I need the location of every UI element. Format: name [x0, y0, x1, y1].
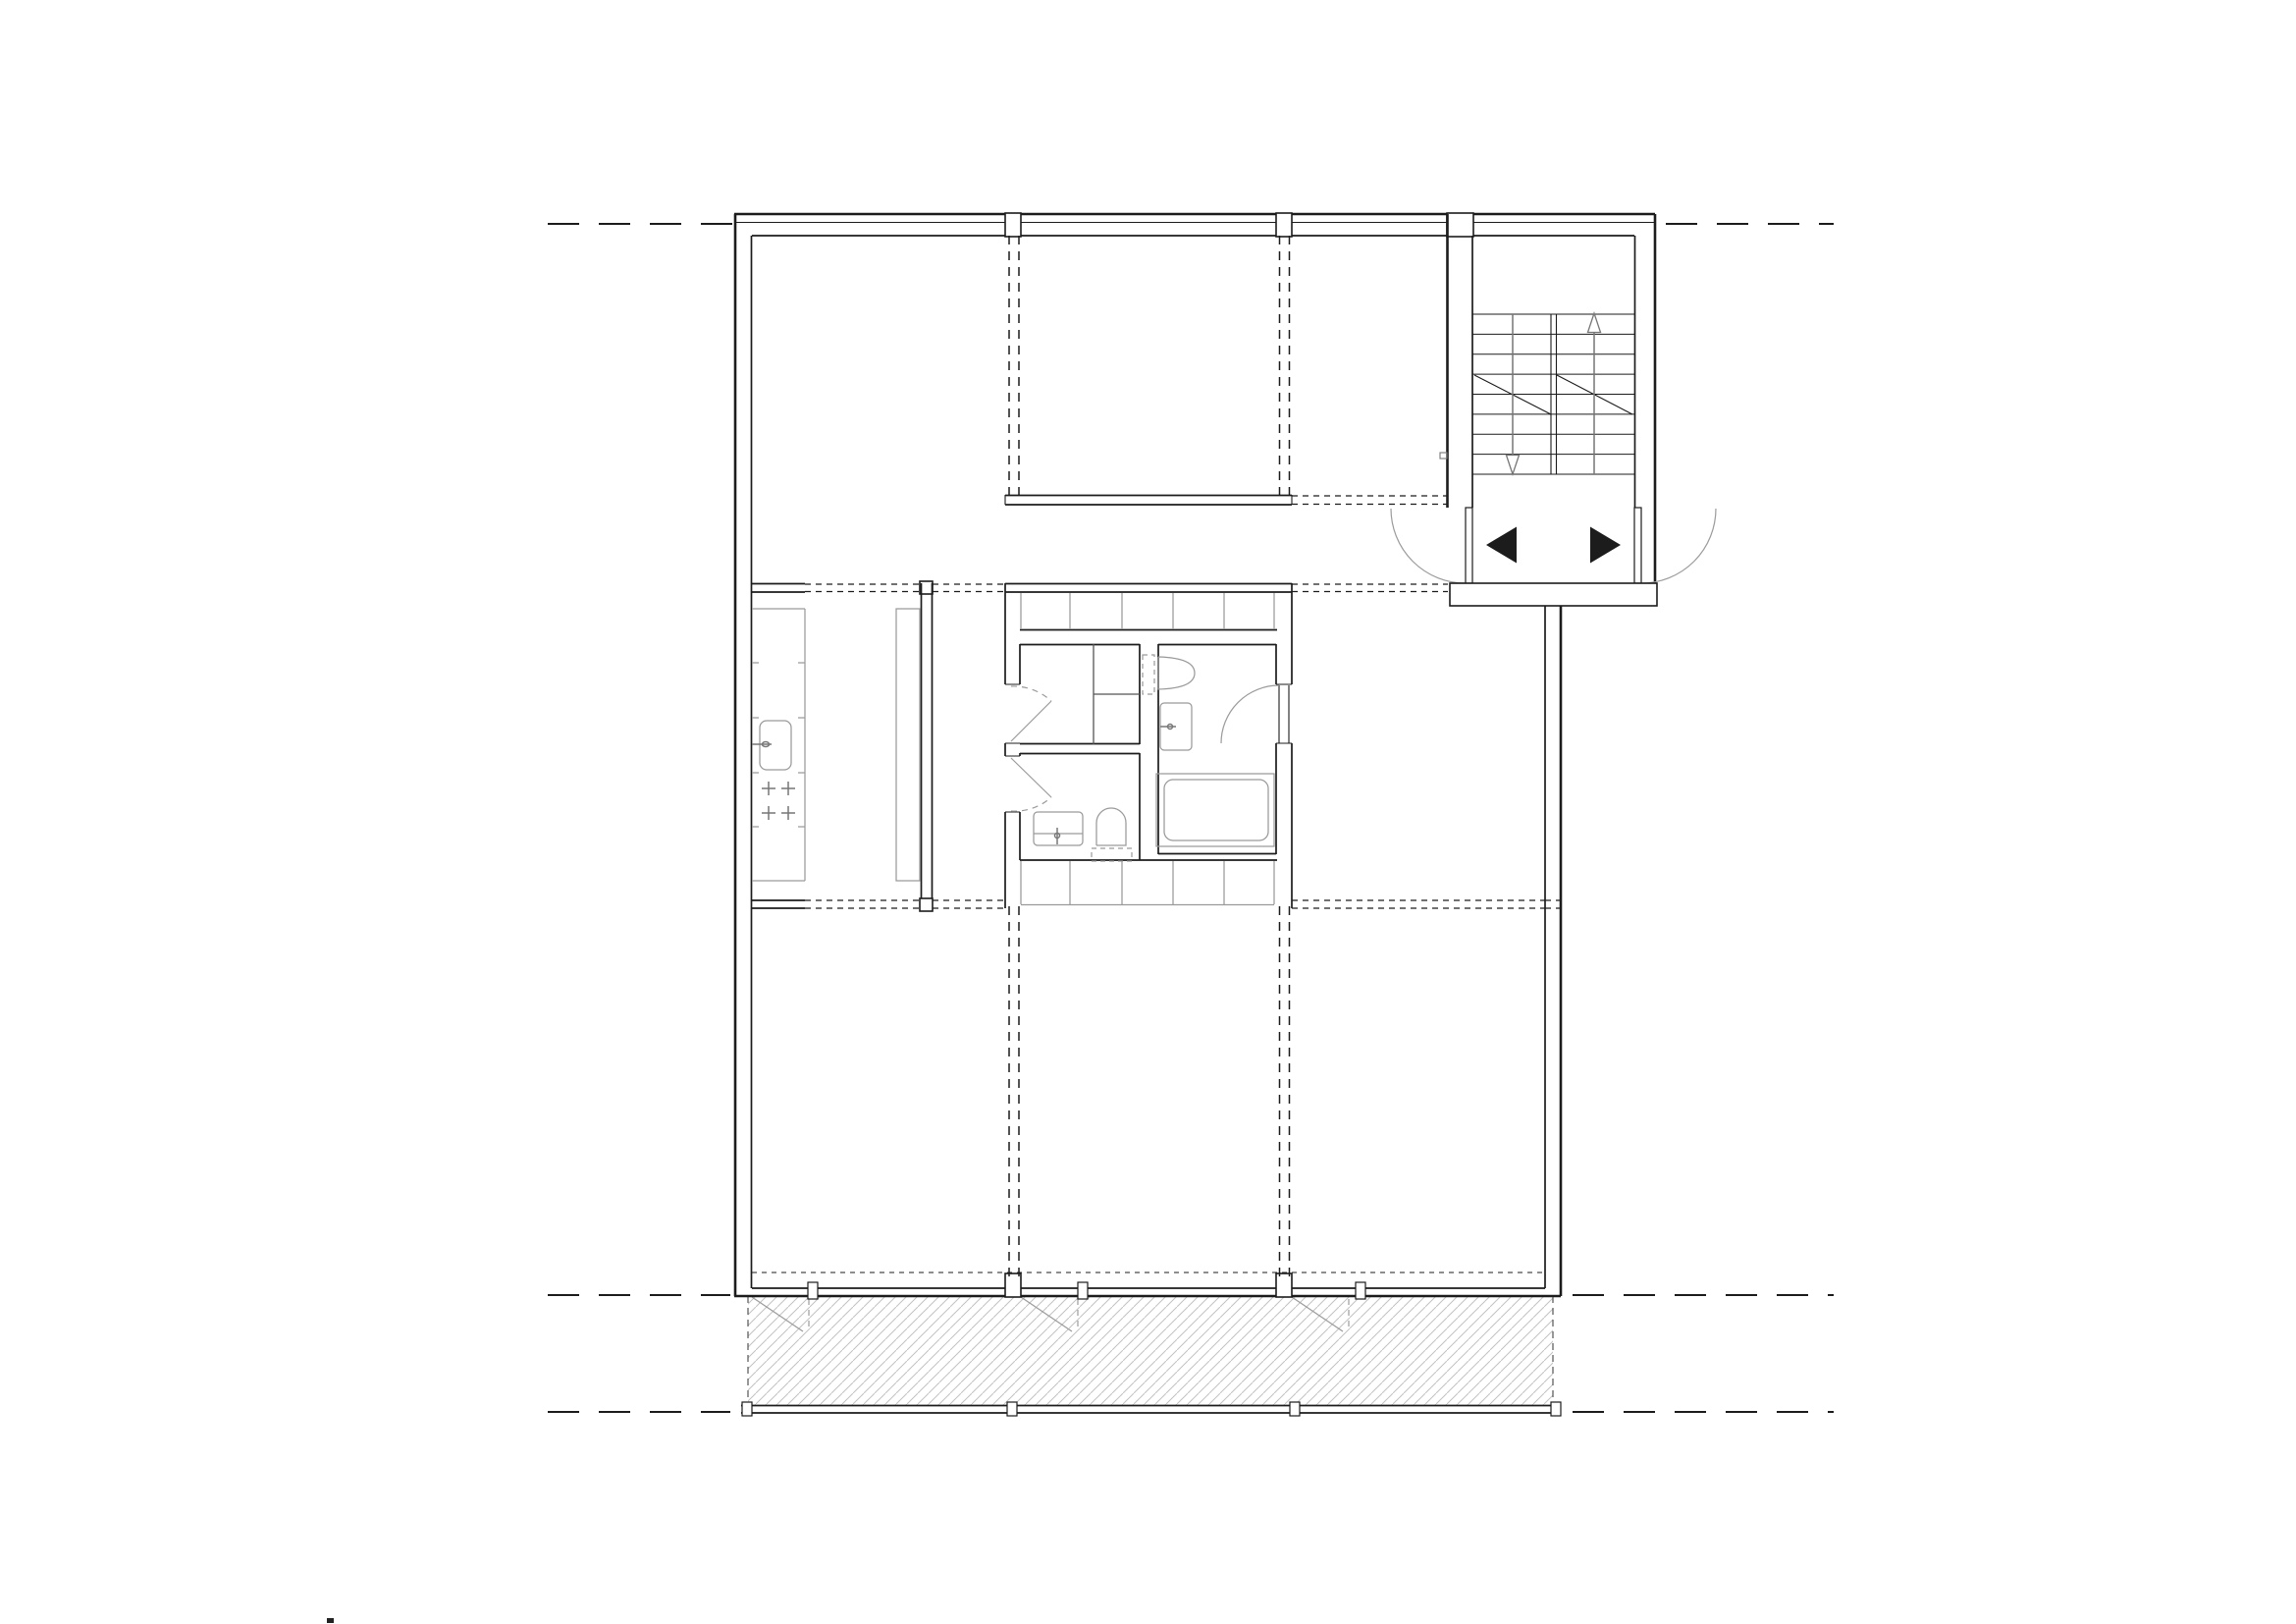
kitchen-sink — [760, 721, 791, 770]
elevator-arrow-left-icon — [1486, 527, 1517, 564]
kitchen-top-wall-stub — [752, 584, 805, 593]
bathroom-with-tub — [1143, 644, 1289, 854]
kitchen-top-opening-left — [805, 584, 921, 592]
window-mullion — [1356, 1282, 1365, 1299]
middle-bottom-wall-stub — [752, 900, 805, 908]
rail-post — [1007, 1402, 1017, 1416]
wall-marker — [1440, 453, 1447, 459]
burner-icon — [762, 806, 775, 820]
bath-toilet — [1158, 657, 1195, 689]
elevator-arrow-right-icon — [1590, 527, 1621, 564]
shower-room-door-leaf — [1011, 701, 1051, 741]
exterior-walls — [734, 213, 1655, 1299]
core — [1005, 583, 1292, 908]
shower-room-door-arc — [1011, 686, 1051, 701]
bath-walls — [1158, 644, 1276, 854]
wc-door-arc — [1011, 797, 1051, 811]
interior-partitions — [752, 236, 1545, 1276]
core-top-wall — [1005, 584, 1292, 593]
staircase — [1472, 313, 1634, 474]
core-left-wall-jambs — [1005, 684, 1020, 812]
top-room-dashed-wall-left — [1009, 236, 1019, 495]
window-mullion — [808, 1282, 818, 1299]
top-pier-right — [1276, 213, 1292, 237]
bottom-pier-left — [1005, 1273, 1021, 1297]
top-pier-left — [1005, 213, 1021, 237]
rail-post — [1290, 1402, 1300, 1416]
bath-door-arc — [1221, 685, 1279, 743]
kitchen — [752, 609, 920, 881]
corridor-lower-dashed-band — [1292, 584, 1448, 592]
bath-toilet-cistern — [1143, 655, 1154, 694]
lobby-door-arc-right — [1641, 509, 1716, 583]
wc-sink — [1034, 812, 1083, 845]
wc-door-leaf — [1011, 758, 1051, 797]
rail-post — [1551, 1402, 1561, 1416]
burner-icon — [762, 782, 775, 795]
lobby-door-leaf-left — [1466, 508, 1472, 583]
balcony — [741, 1296, 1561, 1416]
middle-bottom-opening-right — [1292, 900, 1545, 908]
burner-icon — [781, 806, 795, 820]
core-right-wall-jambs — [1276, 684, 1292, 743]
bathroom-shower-room — [1011, 644, 1140, 744]
datum-lines — [548, 224, 1834, 1412]
lower-dashed-wall-right — [1280, 906, 1290, 1276]
bottom-pier-right — [1276, 1273, 1292, 1297]
bathtub-inner — [1164, 780, 1268, 840]
shower-enclosure — [1094, 644, 1140, 744]
lobby-door-arc-left — [1391, 509, 1466, 583]
floor-plan-page — [0, 0, 2296, 1624]
corridor-upper-dashed-band — [1292, 496, 1448, 505]
up-arrow-head-icon — [1588, 313, 1601, 333]
bathroom-wc — [1011, 753, 1140, 861]
stair-treads — [1472, 314, 1634, 474]
floor-plan-canvas — [0, 0, 2296, 1624]
kitchen-partition-wall — [922, 583, 933, 910]
bathtub-outer — [1156, 774, 1274, 846]
middle-bottom-opening-left — [805, 900, 921, 908]
wardrobe-top-dividers — [1021, 593, 1274, 629]
top-pier-wide — [1447, 213, 1473, 237]
lobby-door-leaf-right — [1634, 508, 1641, 583]
middle-bottom-pier — [920, 898, 933, 911]
kitchen-top-opening-right — [933, 584, 1005, 592]
wc-toilet — [1096, 808, 1126, 845]
elevator-lobby — [1391, 508, 1716, 606]
burner-icon — [781, 782, 795, 795]
kitchen-tall-cabinet — [896, 609, 920, 881]
top-room-dashed-wall-right — [1280, 236, 1290, 495]
top-room-bottom-wall — [1005, 496, 1292, 506]
top-room-bottom-wall-caps — [1005, 495, 1292, 505]
wc-toilet-cistern — [1092, 848, 1132, 861]
balcony-hatch — [748, 1296, 1553, 1406]
bath-door-leaf — [1279, 685, 1289, 743]
rail-post — [742, 1402, 752, 1416]
wardrobe-bottom-dividers — [1021, 861, 1274, 904]
page-mark — [327, 1618, 334, 1623]
cooktop-burners — [762, 782, 795, 820]
elevator-direction-arrows — [1486, 527, 1621, 564]
landing-platform — [1450, 583, 1657, 606]
window-mullion — [1078, 1282, 1088, 1299]
lower-dashed-wall-left — [1009, 906, 1019, 1276]
down-arrow-head-icon — [1507, 456, 1520, 475]
middle-bottom-opening-center — [933, 900, 1005, 908]
